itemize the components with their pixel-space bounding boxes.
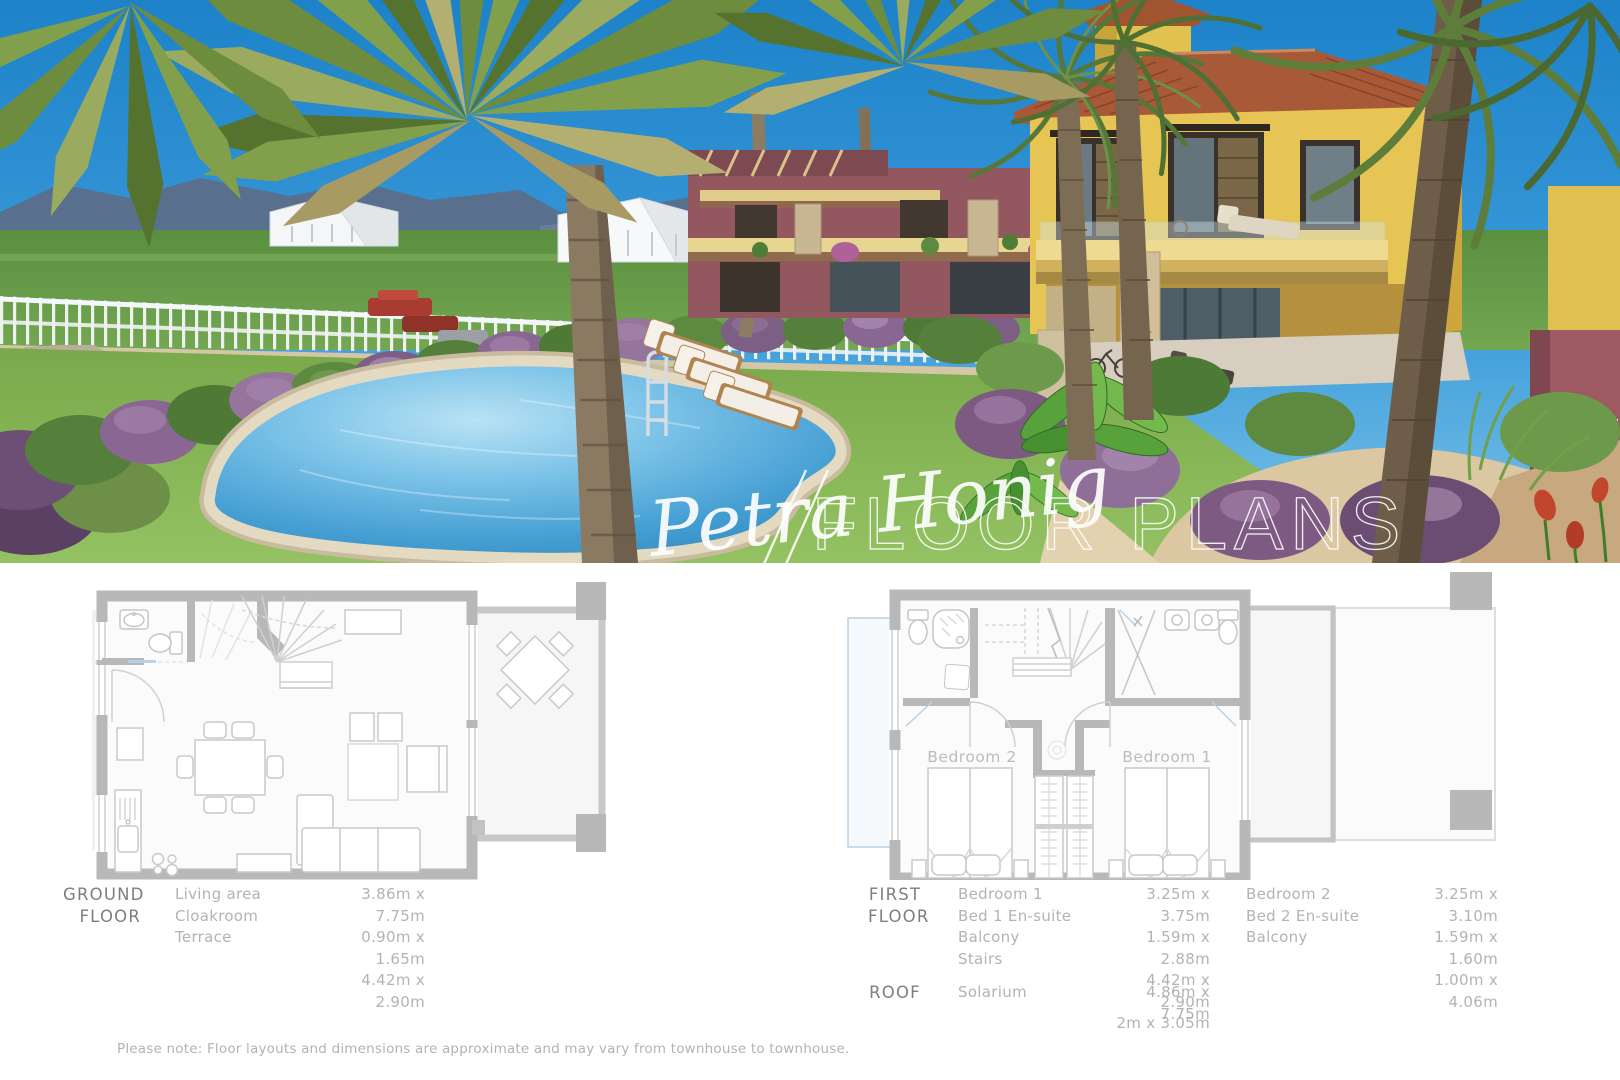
red-car	[402, 316, 458, 332]
brochure-page: Petra Honig FLOOR PLANS	[0, 0, 1620, 1080]
terrace-area	[472, 582, 606, 852]
floor-label: ROOF	[868, 982, 922, 1004]
basin-icon	[1195, 610, 1219, 630]
room-names: Bedroom 1 Bed 1 En-suite Balcony Stairs	[958, 884, 1108, 970]
room-dimensions: 3.86m x 7.75m 0.90m x 1.65m 4.42m x 2.90…	[323, 884, 425, 1013]
room-name: Terrace	[175, 927, 323, 949]
room-name: Living area	[175, 884, 323, 906]
bed	[1109, 768, 1225, 878]
room-name: Balcony	[958, 927, 1108, 949]
bed	[912, 768, 1028, 878]
watermark-title: FLOOR PLANS	[812, 482, 1407, 563]
room-names: Solarium	[958, 982, 1108, 1004]
balcony-left	[848, 618, 892, 847]
room-name: Bedroom 2	[1246, 884, 1396, 906]
basin-icon	[1165, 610, 1189, 630]
room-dims: 3.25m x 3.75m	[1108, 884, 1210, 927]
room-name: Bed 2 En-suite	[1246, 906, 1396, 928]
ground-floor-plan	[92, 570, 742, 884]
room-dims: 3.86m x 7.75m	[323, 884, 425, 927]
bedroom1-label: Bedroom 1	[1122, 748, 1211, 766]
room-dims: 1.59m x 1.60m	[1396, 927, 1498, 970]
balcony-right	[1245, 608, 1333, 840]
sideboard	[345, 610, 401, 634]
room-dims: 0.90m x 1.65m	[323, 927, 425, 970]
basin-icon	[120, 610, 148, 629]
ground-floor-table: GROUND FLOOR Living area Cloakroom Terra…	[63, 884, 425, 1013]
room-dimensions: 3.25m x 3.10m 1.59m x 1.60m 1.00m x 4.06…	[1396, 884, 1498, 1013]
sink-icon	[118, 826, 138, 852]
armchair	[407, 746, 447, 792]
red-car	[368, 298, 432, 316]
room-name: Stairs	[958, 949, 1108, 971]
shower-icon	[933, 610, 969, 648]
coffee-table	[237, 854, 291, 872]
floor-label: GROUND FLOOR	[63, 884, 141, 927]
toilet-icon	[149, 632, 182, 654]
villa-render-photo: Petra Honig FLOOR PLANS	[0, 0, 1620, 563]
villa-scene: Petra Honig FLOOR PLANS	[0, 0, 1620, 563]
sofa	[302, 828, 420, 872]
toilet-icon	[908, 610, 928, 644]
first-floor-plan: Bedroom 2 Bedroom 1	[820, 570, 1510, 884]
room-dims: 1.59m x 2.88m	[1108, 927, 1210, 970]
room-dims: 3.25m x 3.10m	[1396, 884, 1498, 927]
room-name: Cloakroom	[175, 906, 323, 928]
disclaimer-note: Please note: Floor layouts and dimension…	[117, 1041, 849, 1057]
room-dims: 4.42m x 2.90m	[323, 970, 425, 1013]
floor-label: FIRST FLOOR	[868, 884, 922, 927]
bedroom2-label: Bedroom 2	[927, 748, 1016, 766]
room-name: Balcony	[1246, 927, 1396, 949]
room-dimensions: 4.86m x 7.75m	[1108, 982, 1210, 1025]
cabinet	[944, 664, 970, 690]
room-name: Bedroom 1	[958, 884, 1108, 906]
room-names: Living area Cloakroom Terrace	[175, 884, 323, 949]
room-dims: 1.00m x 4.06m	[1396, 970, 1498, 1013]
room-name: Solarium	[958, 982, 1108, 1004]
toilet-icon	[1218, 610, 1238, 644]
armchair	[378, 713, 402, 741]
roof-table: ROOF Solarium 4.86m x 7.75m	[868, 982, 1210, 1025]
armchair	[350, 713, 374, 741]
room-names: Bedroom 2 Bed 2 En-suite Balcony	[1246, 884, 1396, 949]
room-name: Bed 1 En-suite	[958, 906, 1108, 928]
room-dims: 4.86m x 7.75m	[1108, 982, 1210, 1025]
